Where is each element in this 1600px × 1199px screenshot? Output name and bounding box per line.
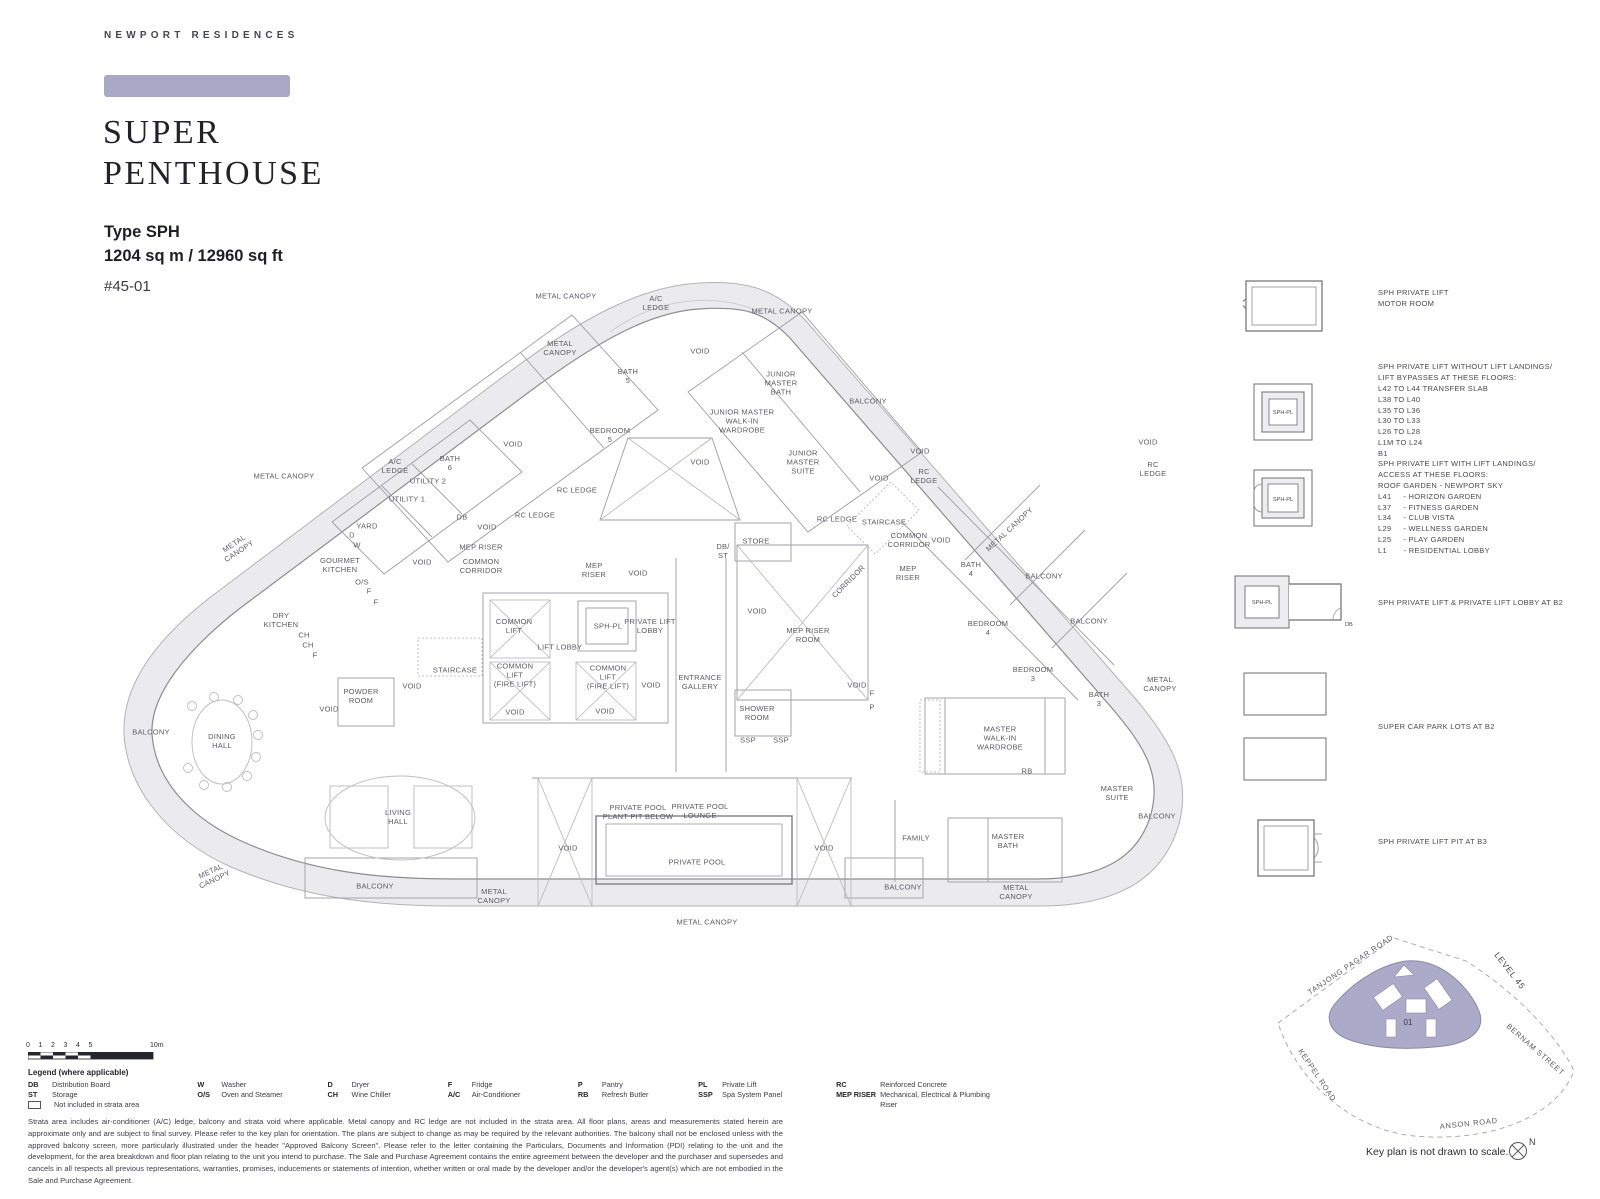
legend-entry: PPantry <box>578 1080 676 1090</box>
legend-entry: DDryer <box>327 1080 425 1090</box>
legend-entry: FFridge <box>448 1080 556 1090</box>
road-label-keppel: KEPPEL ROAD <box>1296 1047 1338 1103</box>
scale-tick: 5 <box>89 1042 93 1049</box>
sph-pl-label: SPH-PL <box>1252 600 1272 606</box>
legend-abbr: RB <box>578 1090 602 1100</box>
legend-text-lift-landing: SPH PRIVATE LIFT WITH LIFT LANDINGS/ACCE… <box>1378 459 1536 557</box>
legend-text-carpark: SUPER CAR PARK LOTS AT B2 <box>1378 722 1495 733</box>
unit-boundary <box>152 308 1154 879</box>
legend-abbr: PL <box>698 1080 722 1090</box>
scale-tick: 0 <box>26 1042 30 1049</box>
legend-line: SPH PRIVATE LIFT & PRIVATE LIFT LOBBY AT… <box>1378 598 1563 609</box>
road-label-anson: ANSON ROAD <box>1439 1116 1498 1131</box>
lift-landing-diagram: SPH-PL <box>1252 468 1316 528</box>
legend-item-motor-room <box>1243 279 1325 338</box>
legend-line: L1 - RESIDENTIAL LOBBY <box>1378 546 1536 557</box>
legend-line: ACCESS AT THESE FLOORS: <box>1378 470 1536 481</box>
legend-entry: DBDistribution Board <box>28 1080 175 1090</box>
legend-abbr: ST <box>28 1090 52 1100</box>
legend-title: Legend (where applicable) <box>28 1068 1028 1077</box>
legend-line: LIFT BYPASSES AT THESE FLOORS: <box>1378 373 1552 384</box>
legend-desc: Wine Chiller <box>351 1090 390 1100</box>
level-label: LEVEL 45 <box>1492 950 1527 991</box>
legend-entry: Not included in strata area <box>28 1100 175 1110</box>
db-label: DB <box>1345 622 1353 628</box>
keyplan-unit-number: 01 <box>1404 1018 1413 1027</box>
legend-column: PPantryRBRefresh Butler <box>578 1080 676 1100</box>
legend-entry: MEP RISERMechanical, Electrical & Plumbi… <box>836 1090 1006 1110</box>
legend-line: SUPER CAR PARK LOTS AT B2 <box>1378 722 1495 733</box>
lift-lobby-b2-diagram: SPH-PL DB <box>1233 570 1353 634</box>
legend-line: L37 - FITNESS GARDEN <box>1378 503 1536 514</box>
sph-pl-label: SPH-PL <box>1273 497 1293 503</box>
legend-column: DBDistribution BoardSTStorageNot include… <box>28 1080 175 1110</box>
legend-item-lift-bypass: SPH-PL <box>1252 382 1316 447</box>
legend-desc: Washer <box>221 1080 246 1090</box>
scale-bar-graphic <box>28 1052 168 1060</box>
legend-entry: RCReinforced Concrete <box>836 1080 1006 1090</box>
legend-abbr: W <box>197 1080 221 1090</box>
legend-text-lift-lobby-b2: SPH PRIVATE LIFT & PRIVATE LIFT LOBBY AT… <box>1378 598 1563 609</box>
legend-desc: Fridge <box>472 1080 493 1090</box>
legend-desc: Not included in strata area <box>54 1100 139 1110</box>
brochure-page: NEWPORT RESIDENCES SUPER PENTHOUSE Type … <box>0 0 1600 1199</box>
keyplan-caption: Key plan is not drawn to scale. <box>1366 1146 1508 1158</box>
legend-line: ROOF GARDEN - NEWPORT SKY <box>1378 481 1536 492</box>
legend-line: L38 TO L40 <box>1378 395 1552 406</box>
legend-line: SPH PRIVATE LIFT WITH LIFT LANDINGS/ <box>1378 459 1536 470</box>
legend-line: SPH PRIVATE LIFT <box>1378 288 1449 299</box>
legend-abbr: O/S <box>197 1090 221 1100</box>
legend-entry: WWasher <box>197 1080 305 1090</box>
legend-desc: Refresh Butler <box>602 1090 649 1100</box>
disclaimer-text: Strata area includes air-conditioner (A/… <box>28 1116 783 1187</box>
legend-desc: Storage <box>52 1090 78 1100</box>
legend-text-motor-room: SPH PRIVATE LIFTMOTOR ROOM <box>1378 288 1449 310</box>
legend-line: L29 - WELLNESS GARDEN <box>1378 524 1536 535</box>
legend-column: RCReinforced ConcreteMEP RISERMechanical… <box>836 1080 1006 1110</box>
carpark-diagram <box>1243 672 1329 782</box>
legend-line: L1M TO L24 <box>1378 438 1552 449</box>
legend-entry: CHWine Chiller <box>327 1090 425 1100</box>
legend-abbr: RC <box>836 1080 880 1090</box>
legend-entry: STStorage <box>28 1090 175 1100</box>
legend-desc: Oven and Steamer <box>221 1090 282 1100</box>
legend-entry: A/CAir-Conditioner <box>448 1090 556 1100</box>
scale-end-label: 10m <box>150 1042 164 1049</box>
legend-item-lift-lobby-b2: SPH-PL DB <box>1233 570 1353 639</box>
legend-abbr: SSP <box>698 1090 722 1100</box>
keyplan: 01 TANJONG PAGAR ROAD LEVEL 45 BERNAM ST… <box>1258 903 1600 1193</box>
legend-column: DDryerCHWine Chiller <box>327 1080 425 1100</box>
keyplan-map: 01 TANJONG PAGAR ROAD LEVEL 45 BERNAM ST… <box>1258 903 1600 1153</box>
legend-abbr: MEP RISER <box>836 1090 880 1110</box>
legend-abbr: CH <box>327 1090 351 1100</box>
legend-line: SPH PRIVATE LIFT PIT AT B3 <box>1378 837 1487 848</box>
legend-line: L30 TO L33 <box>1378 416 1552 427</box>
legend-abbr: A/C <box>448 1090 472 1100</box>
legend-desc: Spa System Panel <box>722 1090 782 1100</box>
legend-line: L41 - HORIZON GARDEN <box>1378 492 1536 503</box>
legend-desc: Air-Conditioner <box>472 1090 521 1100</box>
legend-column: WWasherO/SOven and Steamer <box>197 1080 305 1100</box>
north-label: N <box>1529 1137 1536 1147</box>
legend-item-carpark <box>1243 672 1329 787</box>
legend-column: PLPrivate LiftSSPSpa System Panel <box>698 1080 814 1100</box>
legend-desc: Pantry <box>602 1080 623 1090</box>
legend-entry: O/SOven and Steamer <box>197 1090 305 1100</box>
legend-abbr: D <box>327 1080 351 1090</box>
legend-line: MOTOR ROOM <box>1378 299 1449 310</box>
scale-bar: 012345 10m <box>28 1042 248 1068</box>
legend-item-lift-pit <box>1256 818 1322 883</box>
legend-abbr: F <box>448 1080 472 1090</box>
legend-desc: Private Lift <box>722 1080 756 1090</box>
lift-pit-diagram <box>1256 818 1322 878</box>
scale-tick: 3 <box>64 1042 68 1049</box>
legend-columns: DBDistribution BoardSTStorageNot include… <box>28 1080 1028 1110</box>
legend-entry: RBRefresh Butler <box>578 1090 676 1100</box>
legend-line: L42 TO L44 TRANSFER SLAB <box>1378 384 1552 395</box>
motor-room-diagram <box>1243 279 1325 333</box>
scale-tick: 4 <box>76 1042 80 1049</box>
legend-abbr: P <box>578 1080 602 1090</box>
north-compass-icon: N <box>1504 1135 1544 1163</box>
sph-pl-label: SPH-PL <box>1273 410 1293 416</box>
abbreviation-legend: Legend (where applicable) DBDistribution… <box>28 1068 1028 1110</box>
legend-entry: SSPSpa System Panel <box>698 1090 814 1100</box>
road-label-bernam: BERNAM STREET <box>1505 1022 1567 1077</box>
legend-desc: Mechanical, Electrical & Plumbing Riser <box>880 1090 1006 1110</box>
legend-desc: Dryer <box>351 1080 369 1090</box>
legend-text-lift-pit: SPH PRIVATE LIFT PIT AT B3 <box>1378 837 1487 848</box>
legend-column: FFridgeA/CAir-Conditioner <box>448 1080 556 1100</box>
legend-line: L35 TO L36 <box>1378 406 1552 417</box>
legend-desc: Distribution Board <box>52 1080 110 1090</box>
strata-box-symbol <box>28 1101 41 1109</box>
legend-line: SPH PRIVATE LIFT WITHOUT LIFT LANDINGS/ <box>1378 362 1552 373</box>
legend-line: L34 - CLUB VISTA <box>1378 513 1536 524</box>
legend-desc: Reinforced Concrete <box>880 1080 947 1090</box>
scale-tick: 2 <box>51 1042 55 1049</box>
legend-text-lift-bypass: SPH PRIVATE LIFT WITHOUT LIFT LANDINGS/L… <box>1378 362 1552 460</box>
legend-abbr: DB <box>28 1080 52 1090</box>
legend-line: L26 TO L28 <box>1378 427 1552 438</box>
scale-tick: 1 <box>39 1042 43 1049</box>
legend-line: L25 - PLAY GARDEN <box>1378 535 1536 546</box>
lift-bypass-diagram: SPH-PL <box>1252 382 1316 442</box>
legend-entry: PLPrivate Lift <box>698 1080 814 1090</box>
legend-item-lift-landing: SPH-PL <box>1252 468 1316 533</box>
